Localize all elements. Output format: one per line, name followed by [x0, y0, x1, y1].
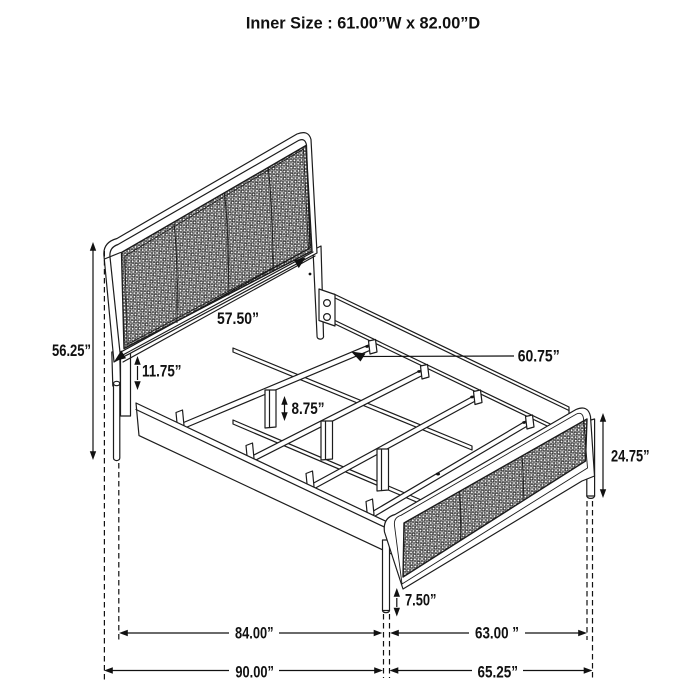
- svg-text:7.50”: 7.50”: [405, 591, 437, 610]
- svg-text:57.50”: 57.50”: [217, 309, 259, 328]
- svg-text:56.25”: 56.25”: [52, 341, 91, 360]
- svg-text:Inner Size : 61.00”W x 82.00”D: Inner Size : 61.00”W x 82.00”D: [246, 15, 481, 33]
- svg-text:11.75”: 11.75”: [142, 362, 182, 381]
- svg-text:24.75”: 24.75”: [611, 447, 650, 466]
- svg-text:65.25”: 65.25”: [478, 663, 519, 682]
- svg-text:90.00”: 90.00”: [235, 663, 274, 682]
- svg-text:8.75”: 8.75”: [292, 399, 325, 418]
- svg-text:84.00”: 84.00”: [235, 623, 274, 642]
- svg-text:60.75”: 60.75”: [518, 347, 560, 366]
- svg-text:63.00 ”: 63.00 ”: [475, 623, 519, 642]
